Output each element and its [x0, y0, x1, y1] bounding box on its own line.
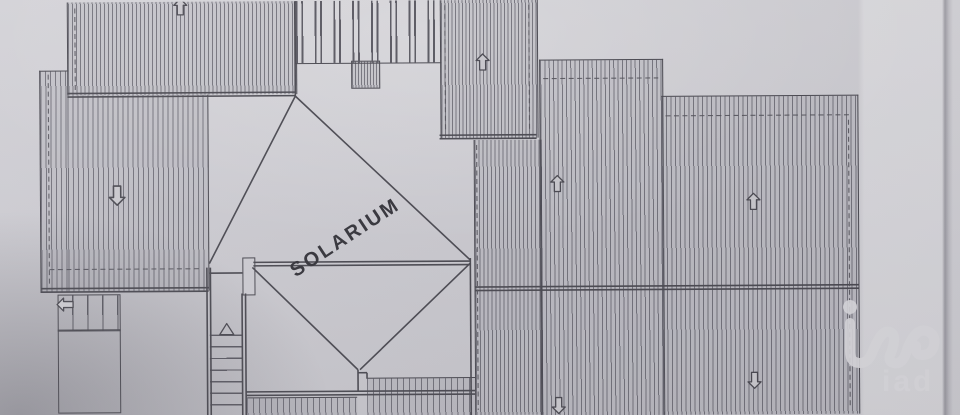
- pergola-beams: [295, 0, 441, 64]
- roof-section-right-outer: [661, 95, 860, 415]
- interior-stair-treads: [210, 334, 244, 415]
- roof-section-left-notch: [39, 71, 69, 293]
- roof-strip-bottom-left: [247, 397, 357, 415]
- roof-plan-photo: SOLARIUM iad: [0, 0, 960, 415]
- chimney: [351, 61, 380, 89]
- roof-strip-bottom-right: [367, 377, 475, 415]
- roof-section-right-inner: [539, 59, 665, 415]
- roof-section-left: [67, 95, 209, 292]
- roof-section-middle-column: [474, 140, 544, 415]
- roof-section-upper-middle: [440, 0, 539, 138]
- stair-direction-triangle-icon: [220, 324, 234, 335]
- roof-plan-drawing: SOLARIUM: [0, 0, 960, 415]
- terrace-landing: [58, 329, 122, 413]
- solarium-room-label: SOLARIUM: [274, 184, 416, 292]
- solarium-post: [242, 257, 255, 295]
- exterior-stair: [58, 294, 121, 331]
- roof-section-top-left: [67, 1, 298, 95]
